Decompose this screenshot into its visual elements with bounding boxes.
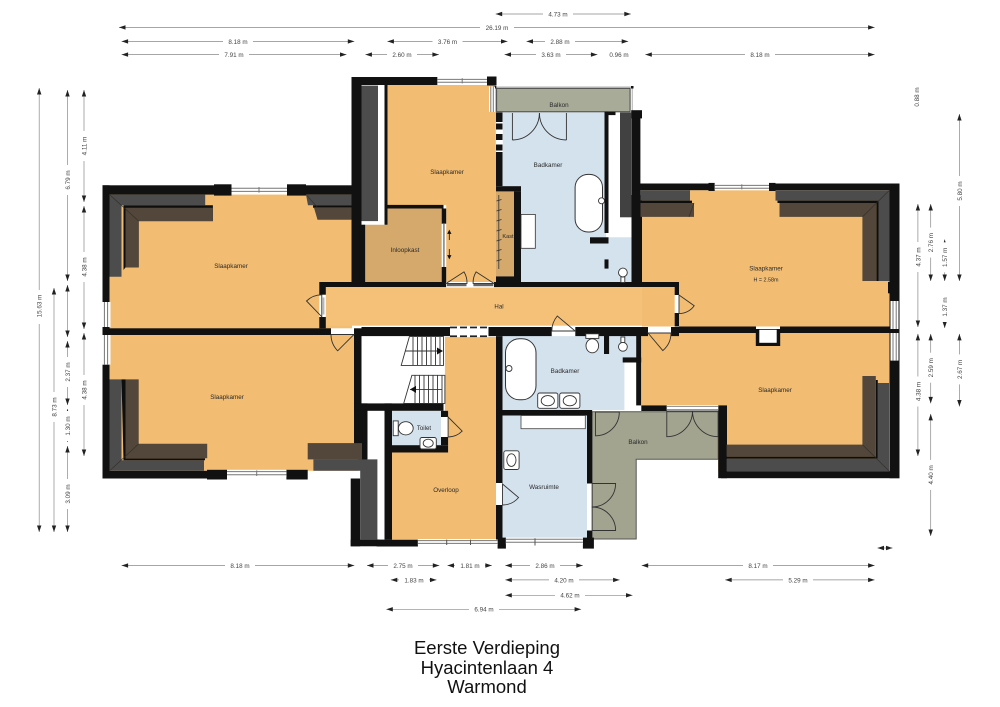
- svg-text:7.91 m: 7.91 m: [224, 52, 243, 59]
- svg-text:0.96 m: 0.96 m: [609, 52, 628, 59]
- svg-text:1.37 m: 1.37 m: [942, 297, 949, 316]
- svg-text:Kast: Kast: [502, 234, 514, 240]
- svg-text:0.88 m: 0.88 m: [914, 87, 921, 106]
- svg-text:4.62 m: 4.62 m: [560, 593, 579, 600]
- svg-text:4.38 m: 4.38 m: [915, 382, 922, 401]
- svg-text:1.81 m: 1.81 m: [460, 563, 479, 570]
- svg-text:4.73 m: 4.73 m: [548, 11, 567, 18]
- svg-text:Slaapkamer: Slaapkamer: [214, 263, 248, 270]
- svg-text:4.38 m: 4.38 m: [81, 257, 88, 276]
- svg-text:5.80 m: 5.80 m: [957, 181, 964, 200]
- svg-text:Toilet: Toilet: [417, 425, 432, 432]
- svg-text:6.94 m: 6.94 m: [474, 607, 493, 614]
- svg-text:Hal: Hal: [494, 304, 503, 311]
- svg-text:Balkon: Balkon: [628, 439, 648, 446]
- svg-text:4.11 m: 4.11 m: [81, 137, 88, 156]
- svg-text:8.18 m: 8.18 m: [750, 52, 769, 59]
- svg-text:5.29 m: 5.29 m: [788, 577, 807, 584]
- svg-text:6.79 m: 6.79 m: [65, 170, 72, 189]
- svg-text:H = 2.58m: H = 2.58m: [753, 278, 779, 284]
- svg-text:8.18 m: 8.18 m: [228, 39, 247, 46]
- svg-text:1.57 m: 1.57 m: [942, 248, 949, 267]
- svg-text:4.40 m: 4.40 m: [928, 465, 935, 484]
- svg-text:Wasruimte: Wasruimte: [529, 484, 559, 491]
- svg-text:2.86 m: 2.86 m: [535, 563, 554, 570]
- svg-text:2.67 m: 2.67 m: [957, 360, 964, 379]
- svg-text:2.88 m: 2.88 m: [550, 39, 569, 46]
- svg-text:Badkamer: Badkamer: [534, 162, 563, 169]
- svg-text:2.75 m: 2.75 m: [393, 563, 412, 570]
- svg-text:8.73 m: 8.73 m: [51, 397, 58, 416]
- svg-text:Slaapkamer: Slaapkamer: [210, 394, 244, 401]
- svg-text:4.37 m: 4.37 m: [915, 247, 922, 266]
- svg-text:1.30 m: 1.30 m: [65, 416, 72, 435]
- svg-text:Badkamer: Badkamer: [551, 368, 580, 375]
- svg-text:3.09 m: 3.09 m: [65, 484, 72, 503]
- svg-text:2.76 m: 2.76 m: [928, 233, 935, 252]
- svg-text:15.63 m: 15.63 m: [37, 295, 44, 318]
- svg-text:8.18 m: 8.18 m: [230, 563, 249, 570]
- svg-text:1.83 m: 1.83 m: [404, 577, 423, 584]
- svg-text:Slaapkamer: Slaapkamer: [430, 169, 464, 176]
- svg-text:26.19 m: 26.19 m: [486, 25, 509, 32]
- svg-text:2.60 m: 2.60 m: [392, 52, 411, 59]
- svg-text:3.76 m: 3.76 m: [438, 39, 457, 46]
- svg-text:Inloopkast: Inloopkast: [391, 247, 420, 254]
- svg-text:Slaapkamer: Slaapkamer: [758, 387, 792, 394]
- svg-text:3.63 m: 3.63 m: [541, 52, 560, 59]
- svg-text:Overloop: Overloop: [433, 487, 459, 494]
- svg-text:Balkon: Balkon: [549, 102, 569, 109]
- svg-text:4.38 m: 4.38 m: [81, 380, 88, 399]
- svg-text:4.20 m: 4.20 m: [554, 577, 573, 584]
- svg-text:Slaapkamer: Slaapkamer: [749, 266, 783, 273]
- svg-text:8.17 m: 8.17 m: [748, 563, 767, 570]
- svg-text:2.59 m: 2.59 m: [928, 358, 935, 377]
- svg-text:2.37 m: 2.37 m: [65, 362, 72, 381]
